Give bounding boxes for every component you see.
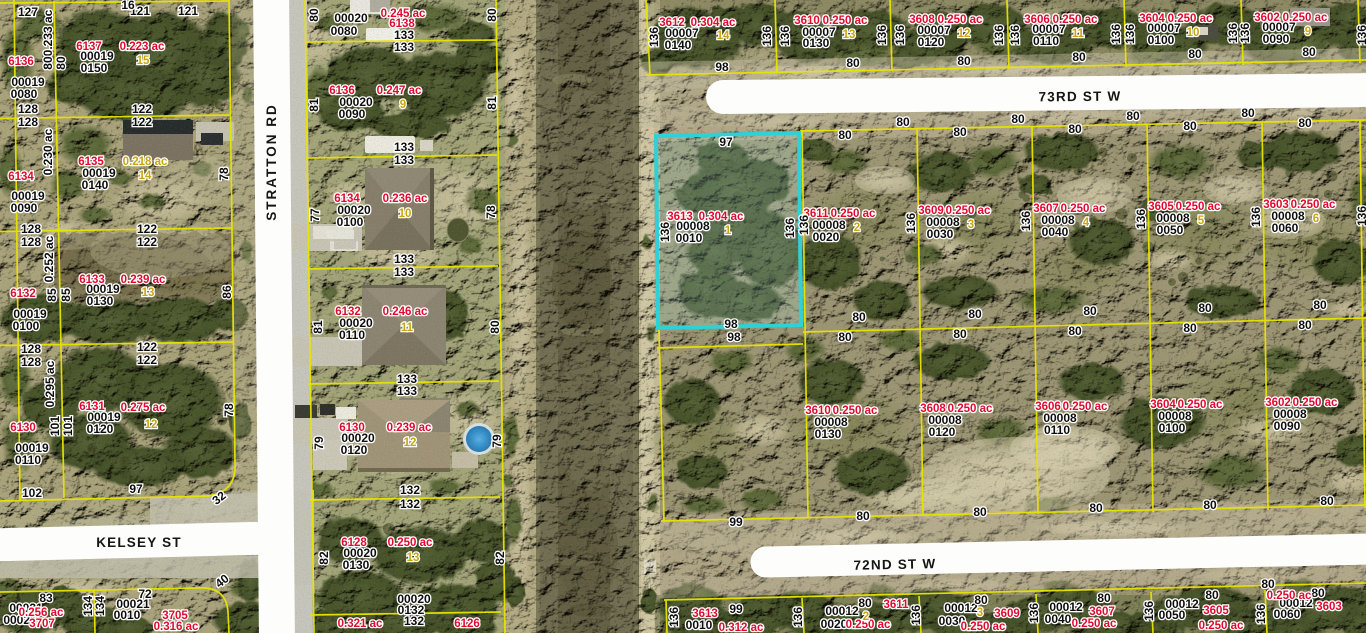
svg-text:136: 136 bbox=[1254, 604, 1268, 624]
svg-text:3602: 3602 bbox=[1265, 397, 1291, 409]
svg-text:80: 80 bbox=[838, 128, 852, 142]
svg-text:3606: 3606 bbox=[1024, 14, 1050, 26]
svg-text:0080: 0080 bbox=[331, 24, 358, 38]
svg-text:80: 80 bbox=[953, 125, 967, 139]
svg-text:136: 136 bbox=[791, 607, 805, 627]
svg-text:0080: 0080 bbox=[11, 87, 38, 101]
svg-text:134: 134 bbox=[93, 596, 107, 616]
svg-text:STRATTON RD: STRATTON RD bbox=[264, 103, 279, 221]
svg-text:0.250 ac: 0.250 ac bbox=[831, 208, 876, 220]
svg-text:6126: 6126 bbox=[454, 618, 480, 630]
svg-text:0100: 0100 bbox=[13, 319, 40, 333]
svg-text:0.250 ac: 0.250 ac bbox=[961, 621, 1006, 633]
svg-text:0130: 0130 bbox=[803, 36, 830, 50]
svg-text:14: 14 bbox=[139, 170, 152, 182]
svg-text:136: 136 bbox=[783, 218, 797, 238]
svg-text:136: 136 bbox=[1249, 207, 1263, 227]
svg-text:136: 136 bbox=[1134, 209, 1148, 229]
svg-text:0100: 0100 bbox=[1159, 421, 1186, 435]
svg-text:3609: 3609 bbox=[994, 608, 1020, 620]
svg-text:6130: 6130 bbox=[339, 422, 365, 434]
svg-text:136: 136 bbox=[893, 25, 907, 45]
svg-text:6138: 6138 bbox=[389, 18, 415, 30]
svg-text:0.250 ac: 0.250 ac bbox=[1267, 590, 1312, 602]
svg-text:78: 78 bbox=[217, 167, 231, 181]
svg-text:0010: 0010 bbox=[686, 618, 713, 632]
svg-text:80: 80 bbox=[968, 307, 982, 321]
svg-text:82: 82 bbox=[317, 551, 331, 565]
svg-text:0.239 ac: 0.239 ac bbox=[387, 422, 432, 434]
svg-text:3611: 3611 bbox=[884, 599, 910, 611]
svg-text:122: 122 bbox=[137, 222, 157, 236]
svg-text:80: 80 bbox=[858, 596, 872, 610]
svg-text:73RD ST W: 73RD ST W bbox=[1038, 89, 1121, 105]
svg-text:80: 80 bbox=[485, 8, 499, 22]
svg-text:6133: 6133 bbox=[79, 274, 105, 286]
svg-text:122: 122 bbox=[137, 340, 157, 354]
svg-text:77: 77 bbox=[308, 208, 322, 222]
svg-text:0060: 0060 bbox=[1274, 607, 1301, 621]
svg-text:00012: 00012 bbox=[944, 601, 978, 615]
svg-text:133: 133 bbox=[394, 140, 414, 154]
svg-text:80: 80 bbox=[1072, 50, 1086, 64]
svg-text:15: 15 bbox=[137, 55, 150, 67]
svg-text:12: 12 bbox=[404, 437, 417, 449]
svg-text:128: 128 bbox=[18, 102, 38, 116]
svg-text:0.246 ac: 0.246 ac bbox=[383, 306, 428, 318]
svg-text:11: 11 bbox=[1072, 28, 1085, 40]
svg-text:136: 136 bbox=[1008, 25, 1022, 45]
svg-text:0120: 0120 bbox=[918, 35, 945, 49]
svg-text:72ND ST W: 72ND ST W bbox=[853, 556, 936, 573]
svg-text:132: 132 bbox=[400, 483, 420, 497]
svg-text:3602: 3602 bbox=[1254, 12, 1280, 24]
svg-text:0.250 ac: 0.250 ac bbox=[1291, 199, 1336, 211]
svg-text:80: 80 bbox=[1068, 324, 1082, 338]
svg-text:136: 136 bbox=[778, 26, 792, 46]
svg-text:128: 128 bbox=[21, 355, 41, 369]
svg-text:6135: 6135 bbox=[78, 156, 104, 168]
svg-text:3604: 3604 bbox=[1139, 13, 1165, 25]
svg-text:0.316 ac: 0.316 ac bbox=[154, 621, 199, 633]
svg-text:82: 82 bbox=[493, 551, 507, 565]
svg-text:133: 133 bbox=[394, 40, 414, 54]
svg-text:3609: 3609 bbox=[918, 205, 944, 217]
svg-text:13: 13 bbox=[407, 552, 420, 564]
svg-text:0.304 ac: 0.304 ac bbox=[691, 17, 736, 29]
svg-text:136: 136 bbox=[909, 605, 923, 625]
svg-text:80: 80 bbox=[1261, 577, 1275, 591]
svg-text:80: 80 bbox=[974, 593, 988, 607]
svg-text:6134: 6134 bbox=[334, 193, 360, 205]
svg-text:99: 99 bbox=[729, 515, 743, 529]
svg-text:0090: 0090 bbox=[11, 201, 38, 215]
svg-text:80: 80 bbox=[1183, 119, 1197, 133]
svg-text:78: 78 bbox=[222, 403, 236, 417]
svg-text:0130: 0130 bbox=[343, 558, 370, 572]
svg-text:0.223 ac: 0.223 ac bbox=[120, 41, 165, 53]
svg-text:3603: 3603 bbox=[1263, 199, 1289, 211]
svg-text:80: 80 bbox=[54, 56, 68, 70]
svg-text:80: 80 bbox=[896, 115, 910, 129]
svg-text:86: 86 bbox=[220, 285, 234, 299]
svg-text:2: 2 bbox=[854, 222, 860, 234]
svg-text:3608: 3608 bbox=[909, 14, 935, 26]
svg-text:9: 9 bbox=[400, 99, 406, 111]
svg-text:80: 80 bbox=[1097, 591, 1111, 605]
svg-text:0040: 0040 bbox=[1045, 612, 1072, 626]
svg-text:11: 11 bbox=[401, 322, 414, 334]
svg-text:80: 80 bbox=[1068, 122, 1082, 136]
svg-text:3: 3 bbox=[977, 607, 983, 619]
svg-text:80: 80 bbox=[1313, 298, 1327, 312]
svg-text:0.250 ac: 0.250 ac bbox=[823, 15, 868, 27]
svg-text:80: 80 bbox=[1298, 116, 1312, 130]
svg-text:12: 12 bbox=[145, 419, 158, 431]
svg-text:0050: 0050 bbox=[1157, 223, 1184, 237]
svg-text:133: 133 bbox=[394, 252, 414, 266]
svg-text:80: 80 bbox=[1198, 301, 1212, 315]
svg-text:0.304 ac: 0.304 ac bbox=[699, 211, 744, 223]
svg-text:0120: 0120 bbox=[341, 443, 368, 457]
svg-text:136: 136 bbox=[667, 607, 681, 627]
svg-text:3610: 3610 bbox=[794, 15, 820, 27]
svg-text:85: 85 bbox=[59, 288, 73, 302]
svg-text:0140: 0140 bbox=[665, 38, 692, 52]
svg-text:0.250 ac: 0.250 ac bbox=[1283, 12, 1328, 24]
svg-text:122: 122 bbox=[132, 102, 152, 116]
svg-text:9: 9 bbox=[1305, 26, 1311, 38]
svg-text:133: 133 bbox=[397, 384, 417, 398]
svg-text:0030: 0030 bbox=[927, 227, 954, 241]
svg-text:0.250 ac: 0.250 ac bbox=[833, 405, 878, 417]
svg-text:85: 85 bbox=[45, 288, 59, 302]
svg-text:80: 80 bbox=[488, 320, 502, 334]
svg-text:14: 14 bbox=[717, 30, 730, 42]
svg-text:80: 80 bbox=[1011, 112, 1025, 126]
svg-text:97: 97 bbox=[129, 482, 143, 496]
svg-text:0.250 ac: 0.250 ac bbox=[1072, 618, 1117, 630]
svg-text:79: 79 bbox=[312, 436, 326, 450]
svg-text:6: 6 bbox=[1313, 213, 1319, 225]
svg-text:80: 80 bbox=[1203, 498, 1217, 512]
svg-text:0090: 0090 bbox=[1263, 32, 1290, 46]
svg-text:0050: 0050 bbox=[1159, 608, 1186, 622]
svg-text:80: 80 bbox=[1126, 109, 1140, 123]
svg-text:0010: 0010 bbox=[114, 608, 141, 622]
svg-text:6136: 6136 bbox=[329, 85, 355, 97]
svg-text:80: 80 bbox=[307, 8, 321, 22]
svg-text:00012: 00012 bbox=[825, 604, 859, 618]
svg-text:0.250 ac: 0.250 ac bbox=[1168, 13, 1213, 25]
svg-text:0.312 ac: 0.312 ac bbox=[719, 622, 764, 633]
svg-text:136: 136 bbox=[875, 25, 889, 45]
svg-text:121: 121 bbox=[178, 4, 198, 18]
svg-text:0.250 ac: 0.250 ac bbox=[1053, 14, 1098, 26]
svg-text:3605: 3605 bbox=[1203, 605, 1229, 617]
svg-text:00020: 00020 bbox=[334, 11, 368, 25]
svg-text:0020: 0020 bbox=[821, 617, 848, 631]
svg-text:128: 128 bbox=[21, 342, 41, 356]
svg-text:6134: 6134 bbox=[8, 171, 34, 183]
svg-text:3612: 3612 bbox=[659, 17, 685, 29]
svg-text:80: 80 bbox=[953, 327, 967, 341]
svg-text:80: 80 bbox=[1320, 494, 1334, 508]
svg-text:78: 78 bbox=[484, 205, 498, 219]
svg-text:0020: 0020 bbox=[813, 230, 840, 244]
svg-text:81: 81 bbox=[311, 320, 325, 334]
svg-text:136: 136 bbox=[797, 215, 811, 235]
svg-text:0110: 0110 bbox=[1044, 423, 1070, 437]
svg-text:3607: 3607 bbox=[1033, 203, 1059, 215]
svg-text:0.250 ac: 0.250 ac bbox=[946, 205, 991, 217]
svg-text:0150: 0150 bbox=[81, 61, 108, 75]
svg-text:0110: 0110 bbox=[1033, 34, 1059, 48]
svg-text:136: 136 bbox=[658, 222, 672, 242]
svg-text:0130: 0130 bbox=[87, 294, 114, 308]
svg-text:3608: 3608 bbox=[920, 403, 946, 415]
svg-text:80: 80 bbox=[852, 310, 866, 324]
svg-text:0130: 0130 bbox=[815, 427, 842, 441]
svg-text:102: 102 bbox=[22, 486, 42, 500]
svg-text:80: 80 bbox=[1089, 501, 1103, 515]
svg-text:0.295 ac: 0.295 ac bbox=[43, 360, 57, 407]
svg-text:0.250 ac: 0.250 ac bbox=[1178, 399, 1223, 411]
svg-text:1: 1 bbox=[725, 225, 732, 237]
svg-text:3606: 3606 bbox=[1035, 401, 1061, 413]
svg-text:136: 136 bbox=[760, 26, 774, 46]
svg-text:0.275 ac: 0.275 ac bbox=[121, 402, 166, 414]
svg-text:0090: 0090 bbox=[339, 107, 366, 121]
svg-text:81: 81 bbox=[307, 98, 321, 112]
svg-text:6132: 6132 bbox=[335, 306, 361, 318]
svg-text:0.218 ac: 0.218 ac bbox=[123, 156, 168, 168]
svg-text:97: 97 bbox=[719, 135, 733, 149]
svg-text:0.250 ac: 0.250 ac bbox=[388, 537, 433, 549]
svg-text:0100: 0100 bbox=[1148, 33, 1175, 47]
svg-text:0060: 0060 bbox=[1272, 221, 1299, 235]
svg-text:98: 98 bbox=[715, 60, 729, 74]
svg-text:0110: 0110 bbox=[339, 328, 365, 342]
svg-text:6130: 6130 bbox=[10, 422, 36, 434]
svg-text:6132: 6132 bbox=[10, 288, 36, 300]
svg-text:5: 5 bbox=[1198, 215, 1205, 227]
svg-text:3604: 3604 bbox=[1150, 399, 1176, 411]
svg-text:0120: 0120 bbox=[929, 425, 956, 439]
svg-text:133: 133 bbox=[394, 265, 414, 279]
svg-text:80: 80 bbox=[973, 505, 987, 519]
svg-text:80: 80 bbox=[1188, 47, 1202, 61]
svg-text:0.239 ac: 0.239 ac bbox=[121, 274, 166, 286]
svg-text:0.321 ac: 0.321 ac bbox=[338, 618, 383, 630]
svg-text:101: 101 bbox=[48, 416, 62, 436]
svg-text:80: 80 bbox=[1298, 318, 1312, 332]
svg-text:6131: 6131 bbox=[79, 401, 105, 413]
svg-text:0.233 ac: 0.233 ac bbox=[41, 9, 55, 56]
svg-text:2: 2 bbox=[863, 611, 869, 623]
svg-text:132: 132 bbox=[404, 614, 424, 628]
svg-text:136: 136 bbox=[904, 213, 918, 233]
svg-text:122: 122 bbox=[137, 353, 157, 367]
svg-text:0.250 ac: 0.250 ac bbox=[1063, 401, 1108, 413]
svg-text:80: 80 bbox=[856, 509, 870, 523]
svg-text:136: 136 bbox=[1027, 603, 1041, 623]
svg-text:10: 10 bbox=[1187, 27, 1200, 39]
svg-text:136: 136 bbox=[1355, 25, 1366, 45]
svg-text:0.250 ac: 0.250 ac bbox=[1199, 620, 1244, 632]
svg-text:0.247 ac: 0.247 ac bbox=[377, 85, 422, 97]
svg-text:122: 122 bbox=[132, 115, 152, 129]
svg-text:136: 136 bbox=[992, 25, 1006, 45]
svg-text:16: 16 bbox=[121, 0, 135, 12]
svg-text:0.250 ac: 0.250 ac bbox=[948, 403, 993, 415]
svg-text:3603: 3603 bbox=[1316, 601, 1342, 613]
svg-text:136: 136 bbox=[1019, 211, 1033, 231]
svg-text:3: 3 bbox=[968, 219, 974, 231]
svg-text:136: 136 bbox=[1123, 24, 1137, 44]
svg-text:101: 101 bbox=[61, 416, 75, 436]
svg-text:KELSEY ST: KELSEY ST bbox=[96, 535, 182, 550]
svg-text:3610: 3610 bbox=[805, 405, 831, 417]
svg-text:136: 136 bbox=[1355, 206, 1366, 226]
svg-text:80: 80 bbox=[838, 330, 852, 344]
svg-text:0.250 ac: 0.250 ac bbox=[1176, 201, 1221, 213]
svg-text:0.236 ac: 0.236 ac bbox=[383, 193, 428, 205]
svg-text:80: 80 bbox=[1183, 321, 1197, 335]
svg-text:128: 128 bbox=[21, 222, 41, 236]
svg-text:6128: 6128 bbox=[341, 537, 367, 549]
svg-text:0.250 ac: 0.250 ac bbox=[938, 14, 983, 26]
svg-text:81: 81 bbox=[485, 96, 499, 110]
svg-text:3605: 3605 bbox=[1148, 201, 1174, 213]
svg-text:80: 80 bbox=[1241, 106, 1255, 120]
svg-text:133: 133 bbox=[394, 153, 414, 167]
svg-text:80: 80 bbox=[41, 56, 55, 70]
svg-text:3607: 3607 bbox=[1089, 606, 1115, 618]
svg-text:98: 98 bbox=[727, 330, 741, 344]
svg-text:10: 10 bbox=[399, 208, 412, 220]
svg-text:4: 4 bbox=[1083, 217, 1090, 229]
svg-text:0090: 0090 bbox=[1274, 419, 1301, 433]
svg-text:0010: 0010 bbox=[676, 231, 703, 245]
svg-text:80: 80 bbox=[957, 54, 971, 68]
svg-text:13: 13 bbox=[142, 287, 155, 299]
svg-text:127: 127 bbox=[18, 5, 38, 19]
svg-text:0110: 0110 bbox=[15, 453, 41, 467]
svg-text:0120: 0120 bbox=[87, 422, 114, 436]
svg-text:132: 132 bbox=[400, 497, 420, 511]
svg-text:6137: 6137 bbox=[76, 41, 102, 53]
svg-text:80: 80 bbox=[1205, 588, 1219, 602]
svg-text:80: 80 bbox=[846, 56, 860, 70]
svg-text:3613: 3613 bbox=[667, 211, 693, 223]
svg-text:128: 128 bbox=[18, 115, 38, 129]
svg-text:0.230 ac: 0.230 ac bbox=[41, 128, 55, 175]
svg-text:0040: 0040 bbox=[1042, 225, 1069, 239]
svg-text:13: 13 bbox=[843, 29, 856, 41]
svg-text:6136: 6136 bbox=[8, 56, 34, 68]
svg-text:136: 136 bbox=[647, 27, 661, 47]
svg-text:80: 80 bbox=[1083, 304, 1097, 318]
svg-text:128: 128 bbox=[21, 235, 41, 249]
svg-text:0.250 ac: 0.250 ac bbox=[1293, 397, 1338, 409]
svg-text:12: 12 bbox=[958, 28, 971, 40]
svg-text:0.250 ac: 0.250 ac bbox=[1061, 203, 1106, 215]
svg-text:136: 136 bbox=[1109, 24, 1123, 44]
svg-text:136: 136 bbox=[1226, 23, 1240, 43]
svg-text:80: 80 bbox=[1302, 45, 1316, 59]
svg-text:3613: 3613 bbox=[692, 608, 718, 620]
svg-text:136: 136 bbox=[1142, 601, 1156, 621]
svg-text:99: 99 bbox=[729, 602, 743, 616]
svg-text:3707: 3707 bbox=[29, 618, 55, 630]
svg-text:80: 80 bbox=[1311, 586, 1325, 600]
svg-text:0.252 ac: 0.252 ac bbox=[42, 235, 56, 282]
svg-text:136: 136 bbox=[1238, 23, 1252, 43]
svg-text:79: 79 bbox=[490, 434, 504, 448]
svg-text:0100: 0100 bbox=[337, 215, 364, 229]
svg-text:98: 98 bbox=[724, 317, 738, 331]
svg-text:0140: 0140 bbox=[82, 178, 109, 192]
svg-text:122: 122 bbox=[137, 235, 157, 249]
